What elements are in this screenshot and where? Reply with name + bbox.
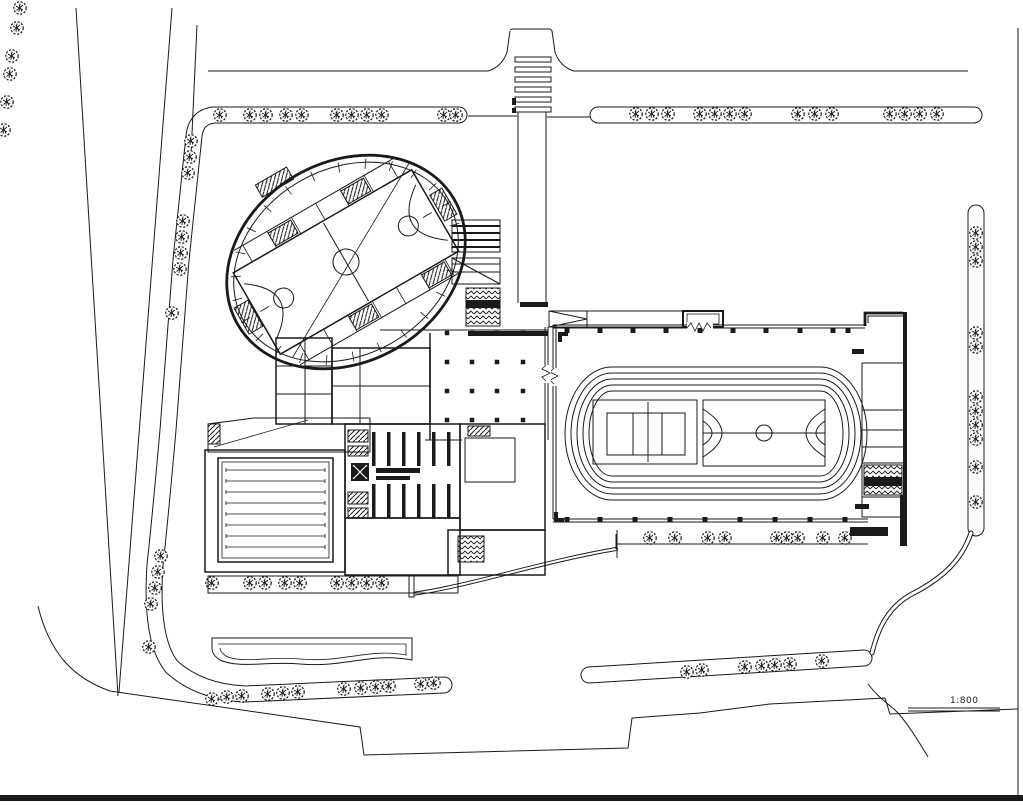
tree-left-strip [152, 566, 164, 578]
locker-room-block [345, 424, 460, 518]
tree-far-left-edge [4, 68, 16, 80]
tree-top-right-strip [630, 108, 642, 120]
tree-left-strip [175, 247, 187, 259]
tree-left-strip [182, 167, 194, 179]
tree-complex-south-row [376, 577, 388, 589]
tree-field-south-row [719, 532, 731, 544]
tree-bottom-left-strip [262, 688, 274, 700]
gym-stair-block [341, 178, 371, 204]
tree-far-left-edge [0, 124, 10, 136]
se-annex [850, 527, 888, 536]
tree-left-strip [155, 550, 167, 562]
tree-left-strip [145, 598, 157, 610]
frame-bottom [0, 795, 1023, 801]
north-road-edge-right [510, 29, 968, 71]
volleyball-court [593, 400, 697, 464]
scale-label: 1:800 [950, 696, 978, 706]
tree-top-right-strip [899, 108, 911, 120]
locker-benches [372, 432, 451, 518]
tree-left-strip [177, 215, 189, 227]
field-ne-corner-wall [865, 313, 903, 326]
site-plan-drawing: 1:800 [0, 0, 1023, 806]
tree-top-left-strip [214, 109, 226, 121]
tree-right-strip [970, 255, 982, 267]
tree-right-strip [970, 341, 982, 353]
tree-strips [154, 115, 976, 694]
plaza-east-wall [545, 327, 548, 440]
tree-right-strip [970, 433, 982, 445]
east-entrance-hall [460, 424, 545, 530]
tree-complex-south-row [244, 577, 256, 589]
pond [212, 638, 412, 665]
tree-field-south-row [702, 532, 714, 544]
tree-top-right-strip [739, 108, 751, 120]
gym-entrance-stair [430, 188, 457, 221]
tree-top-left-strip [361, 109, 373, 121]
tree-bottom-mid-strip [696, 664, 708, 676]
tree-top-left-strip [331, 109, 343, 121]
tree-top-right-strip [724, 108, 736, 120]
tree-right-strip [970, 461, 982, 473]
tree-top-right-strip [792, 108, 804, 120]
tree-bottom-left-strip [206, 693, 218, 705]
field-west-wall [553, 325, 556, 519]
plaza-column-grid [445, 331, 526, 423]
tree-bottom-left-strip [428, 677, 440, 689]
oval-gymnasium [182, 103, 505, 412]
tree-top-right-strip [662, 108, 674, 120]
tree-top-right-strip [646, 108, 658, 120]
tree-top-left-strip [296, 109, 308, 121]
tree-bottom-mid-strip [816, 655, 828, 667]
tree-bottom-mid-strip [681, 666, 693, 678]
gym-entrance-stair [255, 167, 293, 197]
tree-bottom-left-strip [221, 691, 233, 703]
tree-right-strip [970, 227, 982, 239]
strip-connector-lines [468, 116, 590, 117]
east-stand-building [850, 312, 907, 546]
outdoor-basketball-court [703, 400, 825, 466]
gym-stair-block [422, 262, 452, 288]
tree-right-strip [970, 391, 982, 403]
tree-top-right-strip [931, 108, 943, 120]
tree-top-right-strip [709, 108, 721, 120]
tree-complex-south-row [331, 577, 343, 589]
tiny-annotation-mark [512, 108, 516, 113]
tree-left-strip [143, 641, 155, 653]
tree-complex-south-row [294, 577, 306, 589]
swimming-pool [218, 458, 333, 562]
tree-top-left-strip [376, 109, 388, 121]
tree-bottom-left-strip [383, 680, 395, 692]
west-road-edge-1 [76, 8, 118, 696]
tree-left-strip [184, 151, 196, 163]
roads-and-boundary [0, 8, 1023, 801]
scale-bar [908, 708, 1000, 711]
tree-bottom-mid-strip [769, 659, 781, 671]
tree-bottom-left-strip [236, 690, 248, 702]
tree-field-south-row [817, 532, 829, 544]
tree-top-left-strip [260, 109, 272, 121]
tree-top-right-strip [826, 108, 838, 120]
tiny-annotation-mark [855, 504, 869, 509]
sports-field [549, 312, 907, 558]
tree-field-south-row [644, 532, 656, 544]
tree-top-right-strip [914, 108, 926, 120]
gym-stair-block [268, 220, 298, 246]
tree-bottom-left-strip [355, 682, 367, 694]
north-road-edge-left [208, 31, 510, 71]
tree-right-strip [970, 419, 982, 431]
entrance-walkway [512, 98, 548, 307]
tree-complex-south-row [346, 577, 358, 589]
south-hall [345, 518, 460, 575]
tree-left-strip [176, 231, 188, 243]
tree-top-left-strip [450, 109, 462, 121]
tree-field-south-row [669, 532, 681, 544]
tree-right-strip [970, 405, 982, 417]
tree-complex-south-row [279, 577, 291, 589]
tree-bottom-left-strip [415, 678, 427, 690]
south-stairs [458, 536, 484, 562]
tree-far-left-edge [11, 22, 23, 34]
tree-left-strip [149, 582, 161, 594]
tree-left-strip [174, 263, 186, 275]
tree-left-strip [166, 307, 178, 319]
tree-bottom-left-strip [370, 681, 382, 693]
tree-bottom-left-strip [338, 683, 350, 695]
west-road-edge-2 [119, 8, 172, 692]
tree-bottom-left-strip [277, 687, 289, 699]
tiny-annotation-mark [512, 98, 516, 105]
tree-left-strip [185, 135, 197, 147]
tree-complex-south-row [259, 577, 271, 589]
tree-top-left-strip [280, 109, 292, 121]
tree-far-left-edge [14, 2, 26, 14]
tree-complex-south-row [361, 577, 373, 589]
zebra-crossing [515, 57, 551, 112]
tree-top-right-strip [694, 108, 706, 120]
tree-top-right-strip [884, 108, 896, 120]
tree-top-left-strip [244, 109, 256, 121]
tree-right-strip [970, 496, 982, 508]
tree-right-strip [970, 241, 982, 253]
pool-lane-lines [226, 468, 325, 549]
tree-right-strip [970, 327, 982, 339]
tiny-annotation-mark [852, 349, 864, 354]
tree-bottom-mid-strip [739, 661, 751, 673]
natatorium-complex [205, 338, 545, 665]
tree-bottom-left-strip [292, 686, 304, 698]
se-corner-wall [900, 495, 907, 546]
tree-field-south-row [792, 532, 804, 544]
tree-far-left-edge [6, 50, 18, 62]
curved-road [409, 533, 971, 653]
tree-far-left-edge [1, 96, 13, 108]
tree-bottom-mid-strip [756, 660, 768, 672]
gym-stair-block [349, 304, 379, 330]
scale-annotation: 1:800 [908, 696, 1000, 711]
tree-top-left-strip [346, 109, 358, 121]
tree-field-south-row [839, 532, 851, 544]
gate-post [409, 575, 414, 597]
swimming-pool-hall [205, 450, 345, 572]
tree-top-left-strip [438, 109, 450, 121]
stream-line [868, 684, 928, 757]
tree-top-right-strip [809, 108, 821, 120]
cad-site-plan-canvas: 1:800 [0, 0, 1023, 806]
tree-bottom-mid-strip [784, 658, 796, 670]
